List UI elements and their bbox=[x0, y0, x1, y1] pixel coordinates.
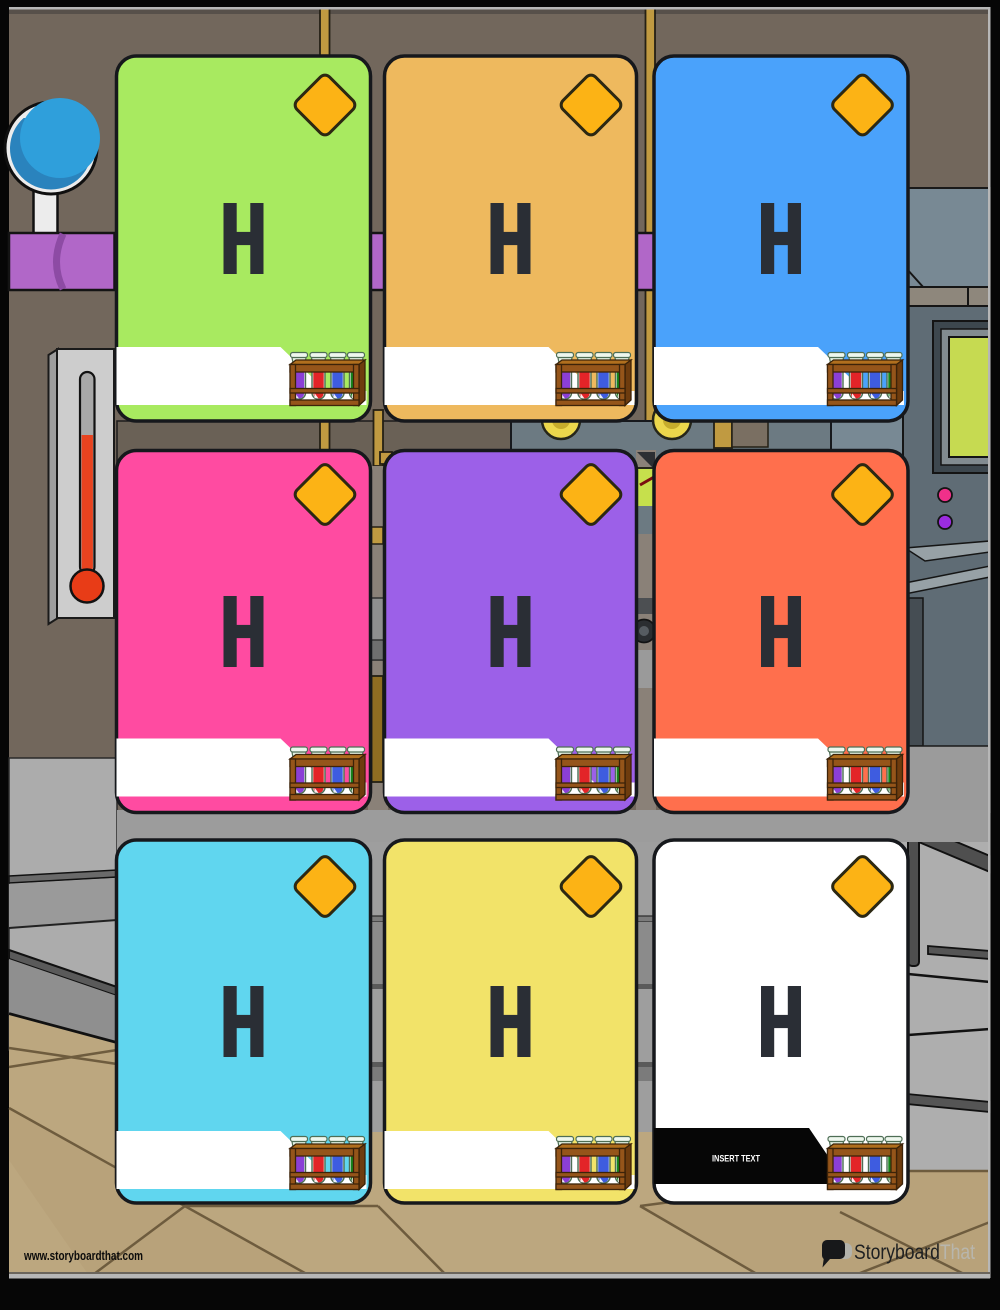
svg-text:www.storyboardthat.com: www.storyboardthat.com bbox=[23, 1248, 143, 1263]
svg-text:INSERT TEXT: INSERT TEXT bbox=[712, 1154, 760, 1165]
svg-text:StoryboardThat: StoryboardThat bbox=[854, 1240, 975, 1264]
